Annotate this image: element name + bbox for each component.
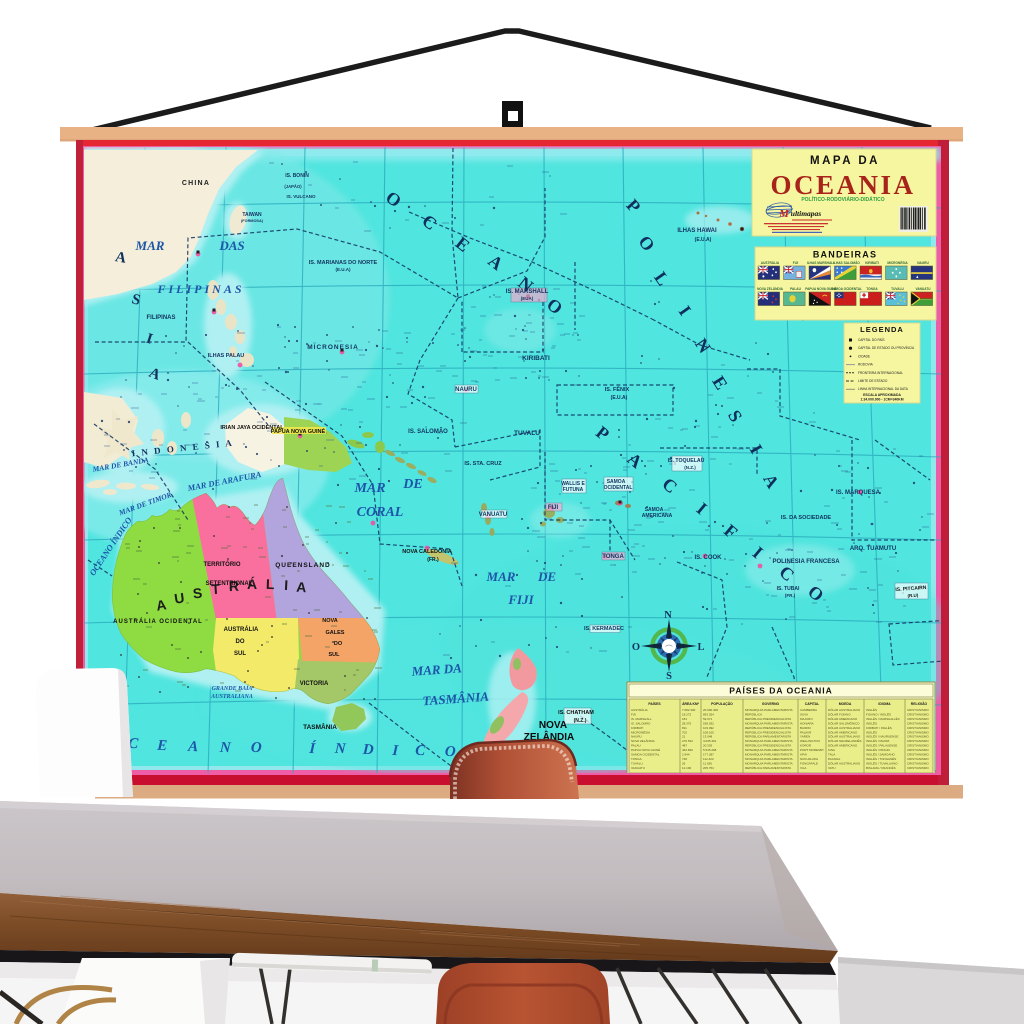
svg-text:IS. MARIANAS DO NORTE: IS. MARIANAS DO NORTE — [309, 260, 378, 266]
svg-text:INGLÊS: INGLÊS — [866, 720, 877, 725]
svg-text:CRISTIANISMO: CRISTIANISMO — [907, 739, 929, 743]
svg-text:POLÍTICO-RODOVIÁRIO-DIDÁTICO: POLÍTICO-RODOVIÁRIO-DIDÁTICO — [801, 195, 884, 203]
svg-text:CRISTIANISMO: CRISTIANISMO — [907, 766, 929, 770]
svg-text:NOVA CALEDÔNIA: NOVA CALEDÔNIA — [402, 547, 452, 555]
svg-text:VANUATU: VANUATU — [479, 512, 507, 518]
svg-text:702: 702 — [682, 730, 687, 734]
svg-text:KIRIBATI: KIRIBATI — [865, 261, 879, 265]
svg-text:PAÍSES: PAÍSES — [648, 701, 661, 706]
svg-text:20.303: 20.303 — [703, 744, 713, 748]
svg-text:CRISTIANISMO: CRISTIANISMO — [907, 761, 929, 765]
svg-text:SAMOA OCIDENTAL: SAMOA OCIDENTAL — [631, 753, 660, 757]
svg-text:FIJI: FIJI — [793, 261, 799, 265]
svg-text:28.370: 28.370 — [682, 721, 692, 725]
svg-text:VILA: VILA — [800, 766, 807, 770]
svg-text:KIRIBATI: KIRIBATI — [522, 355, 550, 362]
svg-text:DÓLAR SALOMÔNICO: DÓLAR SALOMÔNICO — [828, 720, 860, 725]
svg-text:DÓLAR AMERICANO: DÓLAR AMERICANO — [828, 743, 858, 748]
svg-text:IS. STA. CRUZ: IS. STA. CRUZ — [464, 461, 502, 467]
svg-text:FONGAFALE: FONGAFALE — [800, 761, 818, 765]
svg-text:(N.Z.): (N.Z.) — [684, 465, 696, 470]
svg-text:ESCALA APROXIMADA: ESCALA APROXIMADA — [863, 393, 901, 397]
svg-text:INGLÊS / NAURUENSE: INGLÊS / NAURUENSE — [866, 734, 898, 739]
svg-text:2.944: 2.944 — [682, 753, 690, 757]
svg-text:N: N — [218, 740, 232, 757]
svg-text:GALES: GALES — [326, 630, 345, 636]
svg-text:A: A — [296, 579, 307, 596]
svg-text:L: L — [697, 642, 704, 653]
svg-text:L: L — [266, 576, 276, 592]
svg-text:DÓLAR AUSTRALIANO: DÓLAR AUSTRALIANO — [828, 725, 861, 730]
svg-text:FIJI: FIJI — [631, 712, 636, 716]
svg-text:INGLÊS / PIDGIN: INGLÊS / PIDGIN — [866, 747, 890, 752]
svg-text:(FR.): (FR.) — [785, 593, 796, 598]
svg-text:NOVA ZELÂNDIA: NOVA ZELÂNDIA — [631, 738, 655, 743]
svg-text:INGLÊS / MARSHALLÊS: INGLÊS / MARSHALLÊS — [866, 716, 900, 721]
svg-text:E: E — [156, 738, 168, 755]
svg-text:(E.U.A): (E.U.A) — [611, 395, 628, 401]
svg-text:INGLÊS / PALAUENSE: INGLÊS / PALAUENSE — [866, 743, 897, 748]
svg-text:MONARQUIA PARLAMENTARISTA: MONARQUIA PARLAMENTARISTA — [745, 753, 793, 757]
svg-text:NAURU: NAURU — [455, 387, 477, 393]
svg-text:DO: DO — [236, 639, 245, 645]
svg-text:(R.U): (R.U) — [907, 593, 919, 599]
svg-text:DÓLAR AMERICANO: DÓLAR AMERICANO — [828, 729, 858, 734]
svg-text:CRISTIANISMO: CRISTIANISMO — [907, 748, 929, 752]
svg-text:AUSTRALIANA: AUSTRALIANA — [210, 694, 253, 700]
svg-text:ultimapas: ultimapas — [791, 209, 822, 218]
svg-text:CRISTIANISMO: CRISTIANISMO — [907, 753, 929, 757]
svg-text:PAPUA NOVA GUINÉ: PAPUA NOVA GUINÉ — [631, 747, 660, 752]
svg-text:YAREN: YAREN — [800, 735, 810, 739]
svg-text:FIJIANO / INGLÊS: FIJIANO / INGLÊS — [866, 711, 891, 716]
svg-text:NOVA ZELÂNDIA: NOVA ZELÂNDIA — [757, 286, 784, 291]
svg-text:MAR: MAR — [135, 238, 165, 253]
svg-text:112.422: 112.422 — [703, 757, 714, 761]
svg-text:(JAPÃO): (JAPÃO) — [284, 184, 302, 189]
svg-text:ILHAS MARSHALL: ILHAS MARSHALL — [807, 261, 835, 265]
svg-text:NUKUALOFA: NUKUALOFA — [800, 757, 818, 761]
svg-text:MONARQUIA PARLAMENTARISTA: MONARQUIA PARLAMENTARISTA — [745, 748, 793, 752]
svg-text:VICTORIA: VICTORIA — [300, 681, 329, 687]
svg-text:MAR: MAR — [353, 481, 385, 496]
svg-text:DÓLAR AUSTRALIANO: DÓLAR AUSTRALIANO — [828, 734, 861, 739]
svg-text:IS. TUBAI: IS. TUBAI — [777, 586, 800, 592]
svg-text:REPÚBLICA PRESIDENCIALISTA: REPÚBLICA PRESIDENCIALISTA — [745, 716, 791, 721]
svg-text:IS. CHATHAM: IS. CHATHAM — [558, 710, 594, 716]
svg-text:18.272: 18.272 — [682, 712, 692, 716]
svg-text:ARQ. TUAMUTU: ARQ. TUAMUTU — [850, 546, 896, 552]
svg-text:M: M — [778, 208, 790, 220]
svg-text:MONARQUIA PARLAMENTARISTA: MONARQUIA PARLAMENTARISTA — [745, 721, 793, 725]
svg-text:GRANDE BAÍA: GRANDE BAÍA — [212, 684, 253, 692]
svg-text:CHINA: CHINA — [182, 180, 210, 187]
svg-text:LIMITE DE ESTADO: LIMITE DE ESTADO — [858, 379, 888, 383]
svg-text:(FORMOSA): (FORMOSA) — [241, 219, 264, 223]
svg-text:TAIWAN: TAIWAN — [242, 212, 262, 218]
svg-text:MOEDA: MOEDA — [839, 702, 852, 706]
svg-text:IS. FÊNIX: IS. FÊNIX — [605, 385, 630, 393]
svg-text:PALAU: PALAU — [631, 744, 641, 748]
svg-text:IS. MARQUESA: IS. MARQUESA — [836, 490, 881, 496]
svg-text:TUVALU: TUVALU — [514, 430, 540, 437]
svg-text:12.190: 12.190 — [682, 766, 692, 770]
svg-text:(EUA): (EUA) — [521, 296, 534, 301]
svg-text:CAMBERRA: CAMBERRA — [800, 708, 817, 712]
svg-text:IS. DA SOCIEDADE: IS. DA SOCIEDADE — [781, 515, 832, 521]
svg-text:AUSTRÁLIA OCIDENTAL: AUSTRÁLIA OCIDENTAL — [113, 618, 203, 625]
svg-text:SUVA: SUVA — [800, 712, 808, 716]
svg-text:270.534: 270.534 — [682, 739, 693, 743]
svg-text:TALA: TALA — [828, 753, 835, 757]
svg-text:FIJI: FIJI — [548, 505, 559, 511]
svg-text:APIA: APIA — [800, 753, 807, 757]
svg-text:13.048: 13.048 — [703, 735, 713, 739]
svg-text:ILHAS HAWAI: ILHAS HAWAI — [677, 228, 717, 234]
svg-text:CRISTIANISMO: CRISTIANISMO — [907, 717, 929, 721]
svg-text:MICRONESIA: MICRONESIA — [307, 344, 359, 351]
svg-text:GOVERNO: GOVERNO — [762, 702, 780, 706]
svg-text:AUSTRÁLIA: AUSTRÁLIA — [761, 260, 780, 265]
svg-text:11.636: 11.636 — [703, 761, 712, 765]
svg-text:N: N — [664, 610, 672, 621]
svg-text:MONARQUIA PARLAMENTARISTA: MONARQUIA PARLAMENTARISTA — [745, 739, 793, 743]
svg-text:DÓLAR FIJIANO: DÓLAR FIJIANO — [828, 711, 851, 716]
svg-text:POLINESIA FRANCESA: POLINESIA FRANCESA — [772, 559, 840, 565]
svg-text:DO: DO — [334, 641, 343, 647]
svg-text:CORAL: CORAL — [357, 505, 404, 520]
svg-text:CAPITAL DE ESTADO OU PROVÍNCIA: CAPITAL DE ESTADO OU PROVÍNCIA — [858, 346, 915, 350]
svg-text:DÓLAR AUSTRALIANO: DÓLAR AUSTRALIANO — [828, 760, 861, 765]
svg-text:TONGA: TONGA — [866, 287, 878, 291]
svg-text:C: C — [415, 743, 427, 760]
svg-text:CRISTIANISMO: CRISTIANISMO — [907, 730, 929, 734]
svg-text:MAPA DA: MAPA DA — [810, 155, 880, 167]
svg-text:A: A — [187, 739, 199, 756]
svg-text:O: O — [632, 642, 640, 653]
svg-text:REPÚBLICA PARLAMENTARISTA: REPÚBLICA PARLAMENTARISTA — [745, 734, 791, 739]
svg-text:POPULAÇÃO: POPULAÇÃO — [711, 701, 733, 706]
svg-text:7.682.300: 7.682.300 — [682, 708, 696, 712]
svg-text:1:34.000.000 - 1CM=340KM: 1:34.000.000 - 1CM=340KM — [860, 398, 903, 402]
svg-text:(N.Z.): (N.Z.) — [574, 718, 587, 724]
svg-text:FILIPINAS: FILIPINAS — [146, 315, 175, 321]
svg-text:NOVA: NOVA — [539, 720, 567, 731]
svg-text:WELLINGTON: WELLINGTON — [800, 739, 820, 743]
svg-text:CRISTIANISMO: CRISTIANISMO — [907, 726, 929, 730]
svg-text:IS. SALOMÃO: IS. SALOMÃO — [408, 428, 448, 435]
svg-text:TONGA: TONGA — [631, 757, 642, 761]
svg-text:SUL: SUL — [234, 651, 246, 657]
svg-text:20.090.400: 20.090.400 — [703, 708, 718, 712]
svg-text:205.754: 205.754 — [703, 766, 714, 770]
svg-text:BAIRIKI: BAIRIKI — [800, 726, 811, 730]
svg-text:26: 26 — [682, 761, 686, 765]
svg-text:59.071: 59.071 — [703, 717, 713, 721]
svg-text:FIJI: FIJI — [507, 592, 534, 607]
svg-text:KINA: KINA — [828, 748, 835, 752]
svg-text:QUEENSLAND: QUEENSLAND — [275, 562, 331, 569]
svg-text:(FR.): (FR.) — [427, 557, 439, 563]
svg-text:KOROR: KOROR — [800, 744, 812, 748]
svg-text:S: S — [192, 585, 203, 602]
svg-text:AUSTRÁLIA: AUSTRÁLIA — [224, 626, 259, 633]
svg-text:VANUATU: VANUATU — [915, 287, 931, 291]
svg-text:IS. MARSHALL: IS. MARSHALL — [506, 289, 549, 295]
svg-text:INGLÊS / TONGANÊS: INGLÊS / TONGANÊS — [866, 756, 896, 761]
svg-text:MAJURO: MAJURO — [800, 717, 813, 721]
svg-text:DE: DE — [537, 569, 556, 584]
svg-text:PAPUA NOVA GUINÉ: PAPUA NOVA GUINÉ — [271, 427, 326, 435]
svg-text:CIDADE: CIDADE — [858, 354, 870, 358]
svg-text:BANDEIRAS: BANDEIRAS — [813, 250, 877, 260]
svg-text:IS. MARSHALL: IS. MARSHALL — [631, 717, 652, 721]
svg-text:D: D — [361, 742, 374, 759]
svg-text:CRISTIANISMO: CRISTIANISMO — [907, 712, 929, 716]
svg-text:BISLAMA / FRANCÊS: BISLAMA / FRANCÊS — [866, 765, 896, 770]
svg-text:103.092: 103.092 — [703, 726, 714, 730]
svg-text:RODOVIA: RODOVIA — [858, 363, 874, 367]
svg-text:LINHA INTERNACIONAL DA DATA: LINHA INTERNACIONAL DA DATA — [858, 387, 909, 391]
svg-text:462.840: 462.840 — [682, 748, 693, 752]
svg-text:IS. TOQUELAU: IS. TOQUELAU — [668, 458, 705, 464]
svg-text:FRONTEIRA INTERNACIONAL: FRONTEIRA INTERNACIONAL — [858, 371, 903, 375]
svg-text:PAANGA: PAANGA — [828, 757, 840, 761]
svg-text:REPÚBLICA: REPÚBLICA — [745, 711, 762, 716]
svg-text:DÓLAR AMERICANO: DÓLAR AMERICANO — [828, 716, 858, 721]
svg-text:PAÍSES DA OCEANIA: PAÍSES DA OCEANIA — [729, 686, 832, 696]
svg-text:CAPITAL DO PAÍS: CAPITAL DO PAÍS — [858, 338, 885, 342]
svg-text:CRISTIANISMO: CRISTIANISMO — [907, 735, 929, 739]
svg-text:SAMOA OCIDENTAL: SAMOA OCIDENTAL — [831, 287, 862, 291]
svg-text:PORT MORESBY: PORT MORESBY — [800, 748, 824, 752]
svg-text:ILHAS PALAU: ILHAS PALAU — [208, 353, 245, 359]
svg-text:TERRITÓRIO: TERRITÓRIO — [204, 560, 241, 568]
svg-text:VANUATU: VANUATU — [631, 766, 645, 770]
svg-text:748: 748 — [682, 757, 687, 761]
svg-text:108.105: 108.105 — [703, 730, 714, 734]
svg-text:(E.U.A): (E.U.A) — [695, 237, 712, 243]
svg-text:MAR: MAR — [486, 569, 516, 584]
svg-text:IS. VULCANO: IS. VULCANO — [286, 194, 316, 199]
svg-text:893.354: 893.354 — [703, 712, 714, 716]
svg-text:N: N — [333, 741, 347, 758]
svg-text:MONARQUIA PARLAMENTARISTA: MONARQUIA PARLAMENTARISTA — [745, 761, 793, 765]
svg-text:4.035.461: 4.035.461 — [703, 739, 717, 743]
svg-text:IS. BONIN: IS. BONIN — [285, 173, 309, 179]
svg-text:KIRIBATI / INGLÊS: KIRIBATI / INGLÊS — [866, 725, 892, 730]
svg-text:FUTUNA: FUTUNA — [563, 487, 584, 493]
svg-text:21: 21 — [682, 735, 686, 739]
svg-text:DÓLAR AUSTRALIANO: DÓLAR AUSTRALIANO — [828, 707, 861, 712]
svg-text:TUVALU: TUVALU — [891, 287, 904, 291]
svg-text:MICRONÉSIA: MICRONÉSIA — [887, 260, 908, 265]
svg-text:NOVA: NOVA — [322, 618, 338, 624]
svg-text:VATU: VATU — [828, 766, 836, 770]
svg-text:REPÚBLICA PARLAMENTARISTA: REPÚBLICA PARLAMENTARISTA — [745, 765, 791, 770]
svg-text:ILHAS SALOMÃO: ILHAS SALOMÃO — [833, 260, 860, 265]
svg-text:CRISTIANISMO: CRISTIANISMO — [907, 744, 929, 748]
svg-text:IS. SALOMÃO: IS. SALOMÃO — [631, 720, 651, 725]
svg-text:MONARQUIA PARLAMENTARISTA: MONARQUIA PARLAMENTARISTA — [745, 757, 793, 761]
svg-text:IDIOMA: IDIOMA — [878, 702, 891, 706]
svg-text:MONARQUIA PARLAMENTARISTA: MONARQUIA PARLAMENTARISTA — [745, 708, 793, 712]
svg-text:NAURU: NAURU — [631, 735, 642, 739]
svg-text:AMERICANA: AMERICANA — [642, 513, 673, 519]
svg-text:RELIGIÃO: RELIGIÃO — [911, 701, 928, 706]
svg-text:OCEANIA: OCEANIA — [770, 170, 915, 200]
svg-text:TASMÂNIA: TASMÂNIA — [303, 722, 337, 731]
svg-text:SETENTRIONAL: SETENTRIONAL — [206, 581, 253, 587]
svg-text:CRISTIANISMO: CRISTIANISMO — [907, 757, 929, 761]
svg-text:ÁREA KM²: ÁREA KM² — [682, 701, 700, 706]
svg-text:CRISTIANISMO: CRISTIANISMO — [907, 721, 929, 725]
svg-text:538.032: 538.032 — [703, 721, 714, 725]
svg-text:INGLÊS / TUVALUANO: INGLÊS / TUVALUANO — [866, 760, 898, 765]
svg-text:DÓLAR NEOZELANDÊS: DÓLAR NEOZELANDÊS — [828, 738, 862, 743]
svg-text:PALAU: PALAU — [790, 287, 801, 291]
svg-text:177.287: 177.287 — [703, 753, 714, 757]
svg-text:487: 487 — [682, 744, 687, 748]
svg-text:INGLÊS / MAORI: INGLÊS / MAORI — [866, 738, 890, 743]
svg-text:CRISTIANISMO: CRISTIANISMO — [907, 708, 929, 712]
svg-text:TUVALU: TUVALU — [631, 761, 643, 765]
svg-text:REPÚBLICA PRESIDENCIALISTA: REPÚBLICA PRESIDENCIALISTA — [745, 743, 791, 748]
svg-text:SUL: SUL — [329, 652, 341, 658]
svg-text:O: O — [250, 740, 262, 757]
svg-text:AUSTRÁLIA: AUSTRÁLIA — [631, 708, 648, 712]
svg-text:I: I — [284, 577, 289, 593]
svg-text:TONGA: TONGA — [602, 554, 624, 560]
svg-text:DAS: DAS — [218, 238, 244, 253]
svg-text:LEGENDA: LEGENDA — [860, 325, 904, 334]
svg-text:REPÚBLICA PRESIDENCIALISTA: REPÚBLICA PRESIDENCIALISTA — [745, 725, 791, 730]
svg-text:181: 181 — [682, 717, 687, 721]
svg-text:FILIPINAS: FILIPINAS — [156, 282, 244, 296]
svg-text:5.545.268: 5.545.268 — [703, 748, 717, 752]
svg-text:REPÚBLICA PRESIDENCIALISTA: REPÚBLICA PRESIDENCIALISTA — [745, 729, 791, 734]
svg-text:HONIARA: HONIARA — [800, 721, 814, 725]
svg-text:S: S — [666, 671, 672, 682]
svg-text:NAURU: NAURU — [917, 261, 929, 265]
svg-text:DE: DE — [402, 477, 422, 492]
svg-text:IS. COOK: IS. COOK — [694, 555, 722, 561]
svg-text:(E.U.A): (E.U.A) — [336, 267, 352, 272]
svg-text:OCIDENTAL: OCIDENTAL — [604, 485, 633, 491]
svg-text:CAPITAL: CAPITAL — [805, 702, 819, 706]
svg-text:PALIKIR: PALIKIR — [800, 730, 812, 734]
svg-text:IS. KERMADEC: IS. KERMADEC — [584, 626, 624, 632]
svg-text:INGLÊS: INGLÊS — [866, 729, 877, 734]
svg-text:811: 811 — [682, 726, 687, 730]
svg-text:INGLÊS / SAMOANO: INGLÊS / SAMOANO — [866, 752, 896, 757]
svg-text:KIRIBATI: KIRIBATI — [631, 726, 643, 730]
svg-text:MICRONÉSIA: MICRONÉSIA — [631, 729, 650, 734]
svg-text:INGLÊS: INGLÊS — [866, 707, 877, 712]
